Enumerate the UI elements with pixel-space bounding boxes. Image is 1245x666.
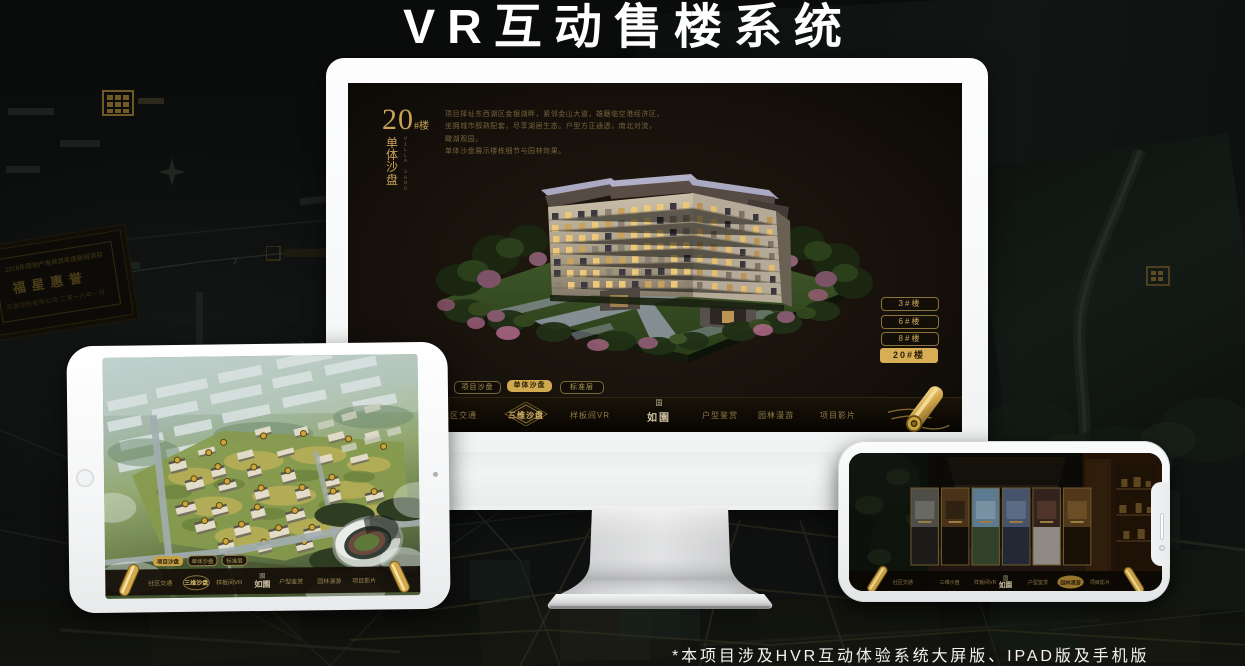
svg-text:样板间VR: 样板间VR — [974, 579, 997, 586]
svg-text:项目沙盘: 项目沙盘 — [157, 557, 180, 565]
svg-text:如園: 如園 — [254, 579, 270, 589]
svg-text:如園: 如園 — [999, 580, 1013, 589]
svg-text:社区交通: 社区交通 — [893, 579, 913, 586]
svg-text:户型鉴赏: 户型鉴赏 — [279, 577, 303, 585]
svg-text:项目影片: 项目影片 — [352, 577, 376, 585]
svg-text:园林漫游: 园林漫游 — [317, 577, 341, 585]
svg-text:三维沙盘: 三维沙盘 — [939, 579, 959, 586]
svg-text:园林漫游: 园林漫游 — [1060, 580, 1080, 587]
svg-text:三维沙盘: 三维沙盘 — [184, 579, 208, 587]
svg-text:标准层: 标准层 — [226, 557, 243, 565]
svg-text:单体沙盘: 单体沙盘 — [191, 557, 214, 565]
svg-text:项目影片: 项目影片 — [1090, 579, 1110, 586]
svg-text:户型鉴赏: 户型鉴赏 — [1028, 579, 1048, 586]
